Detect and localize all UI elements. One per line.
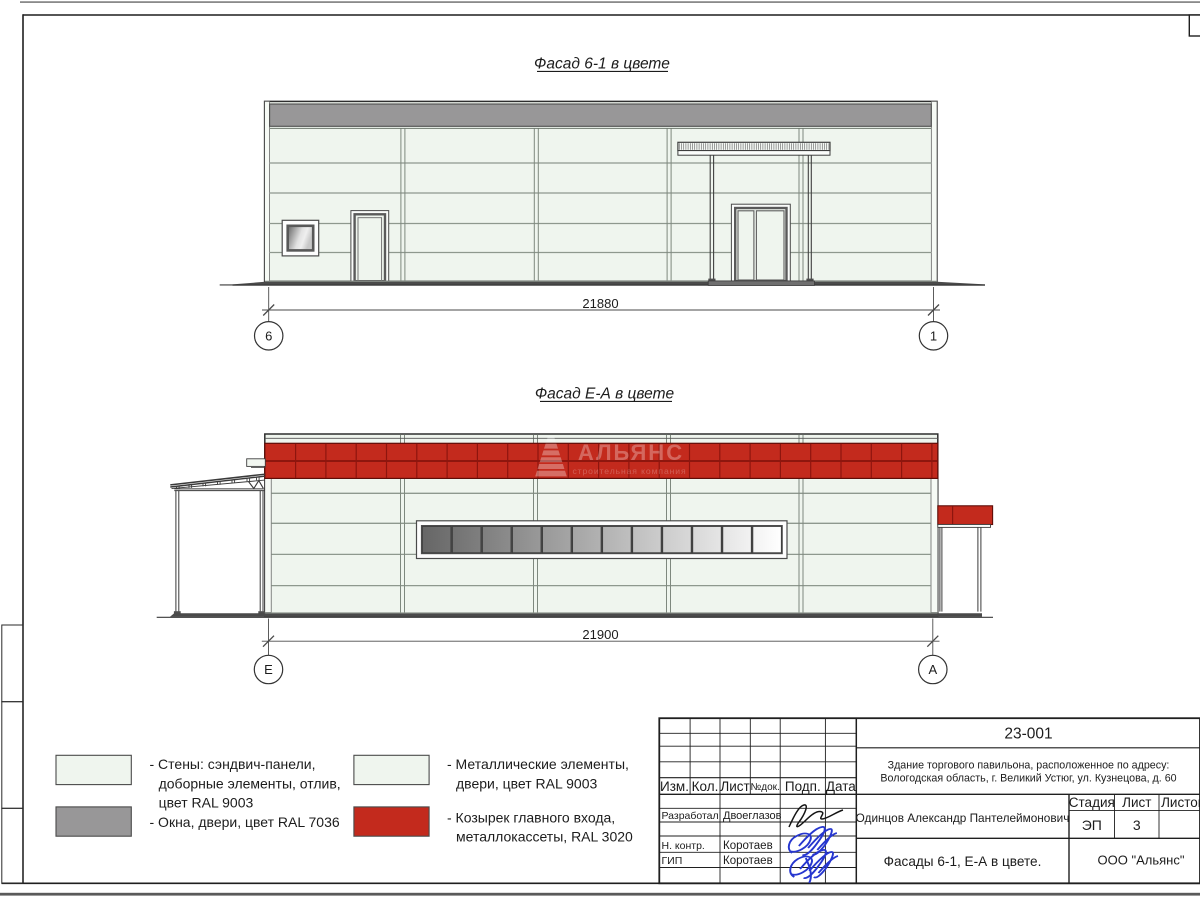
svg-text:Е: Е xyxy=(264,662,273,677)
svg-text:Здание торгового павильона, ра: Здание торгового павильона, расположенно… xyxy=(888,759,1170,771)
svg-text:АЛЬЯНС: АЛЬЯНС xyxy=(578,440,684,465)
svg-text:21900: 21900 xyxy=(582,627,618,642)
svg-text:строительная компания: строительная компания xyxy=(572,466,686,476)
svg-text:ООО "Альянс": ООО "Альянс" xyxy=(1098,853,1185,868)
svg-text:23-001: 23-001 xyxy=(1004,726,1052,743)
svg-text:доборные элементы, отлив,: доборные элементы, отлив, xyxy=(159,775,341,791)
svg-text:Подп.: Подп. xyxy=(785,779,821,794)
svg-text:- Стены: сэндвич-панели,: - Стены: сэндвич-панели, xyxy=(150,756,316,772)
svg-text:Коротаев: Коротаев xyxy=(723,840,773,852)
svg-text:Фасад 6-1 в цвете: Фасад 6-1 в цвете xyxy=(534,56,670,73)
svg-text:Коротаев: Коротаев xyxy=(723,855,773,867)
svg-text:Вологодская область, г. Велики: Вологодская область, г. Великий Устюг, у… xyxy=(880,773,1176,785)
svg-text:Кол.: Кол. xyxy=(692,779,719,794)
svg-text:Дата: Дата xyxy=(826,779,856,794)
svg-text:ГИП: ГИП xyxy=(662,855,683,867)
svg-text:цвет RAL 9003: цвет RAL 9003 xyxy=(159,795,254,811)
svg-text:ЭП: ЭП xyxy=(1082,817,1102,833)
svg-text:металлокассеты, RAL 3020: металлокассеты, RAL 3020 xyxy=(456,829,633,845)
svg-text:Фасад Е-А в цвете: Фасад Е-А в цвете xyxy=(535,386,675,403)
svg-text:- Козырек главного входа,: - Козырек главного входа, xyxy=(447,809,615,825)
svg-text:1: 1 xyxy=(930,329,937,344)
svg-text:Изм.: Изм. xyxy=(660,779,689,794)
svg-text:3: 3 xyxy=(1133,817,1141,833)
svg-text:Фасады 6-1, Е-А в цвете.: Фасады 6-1, Е-А в цвете. xyxy=(884,854,1042,869)
svg-text:Разработал: Разработал xyxy=(662,810,719,822)
svg-text:Одинцов Александр Пантелеймоно: Одинцов Александр Пантелеймонович xyxy=(856,811,1070,825)
svg-text:Лист: Лист xyxy=(1122,795,1151,810)
svg-text:Лист: Лист xyxy=(720,779,749,794)
svg-text:Листов: Листов xyxy=(1161,795,1200,810)
svg-text:№док.: №док. xyxy=(751,782,780,793)
svg-text:- Окна, двери, цвет RAL 7036: - Окна, двери, цвет RAL 7036 xyxy=(150,814,340,830)
svg-text:21880: 21880 xyxy=(582,296,618,311)
svg-text:6: 6 xyxy=(265,329,272,344)
svg-text:Стадия: Стадия xyxy=(1069,795,1115,810)
svg-text:Двоеглазов: Двоеглазов xyxy=(723,810,782,822)
svg-text:А: А xyxy=(928,662,937,677)
svg-text:Н. контр.: Н. контр. xyxy=(662,840,705,852)
svg-text:двери, цвет RAL 9003: двери, цвет RAL 9003 xyxy=(456,775,598,791)
svg-text:- Металлические элементы,: - Металлические элементы, xyxy=(447,756,629,772)
